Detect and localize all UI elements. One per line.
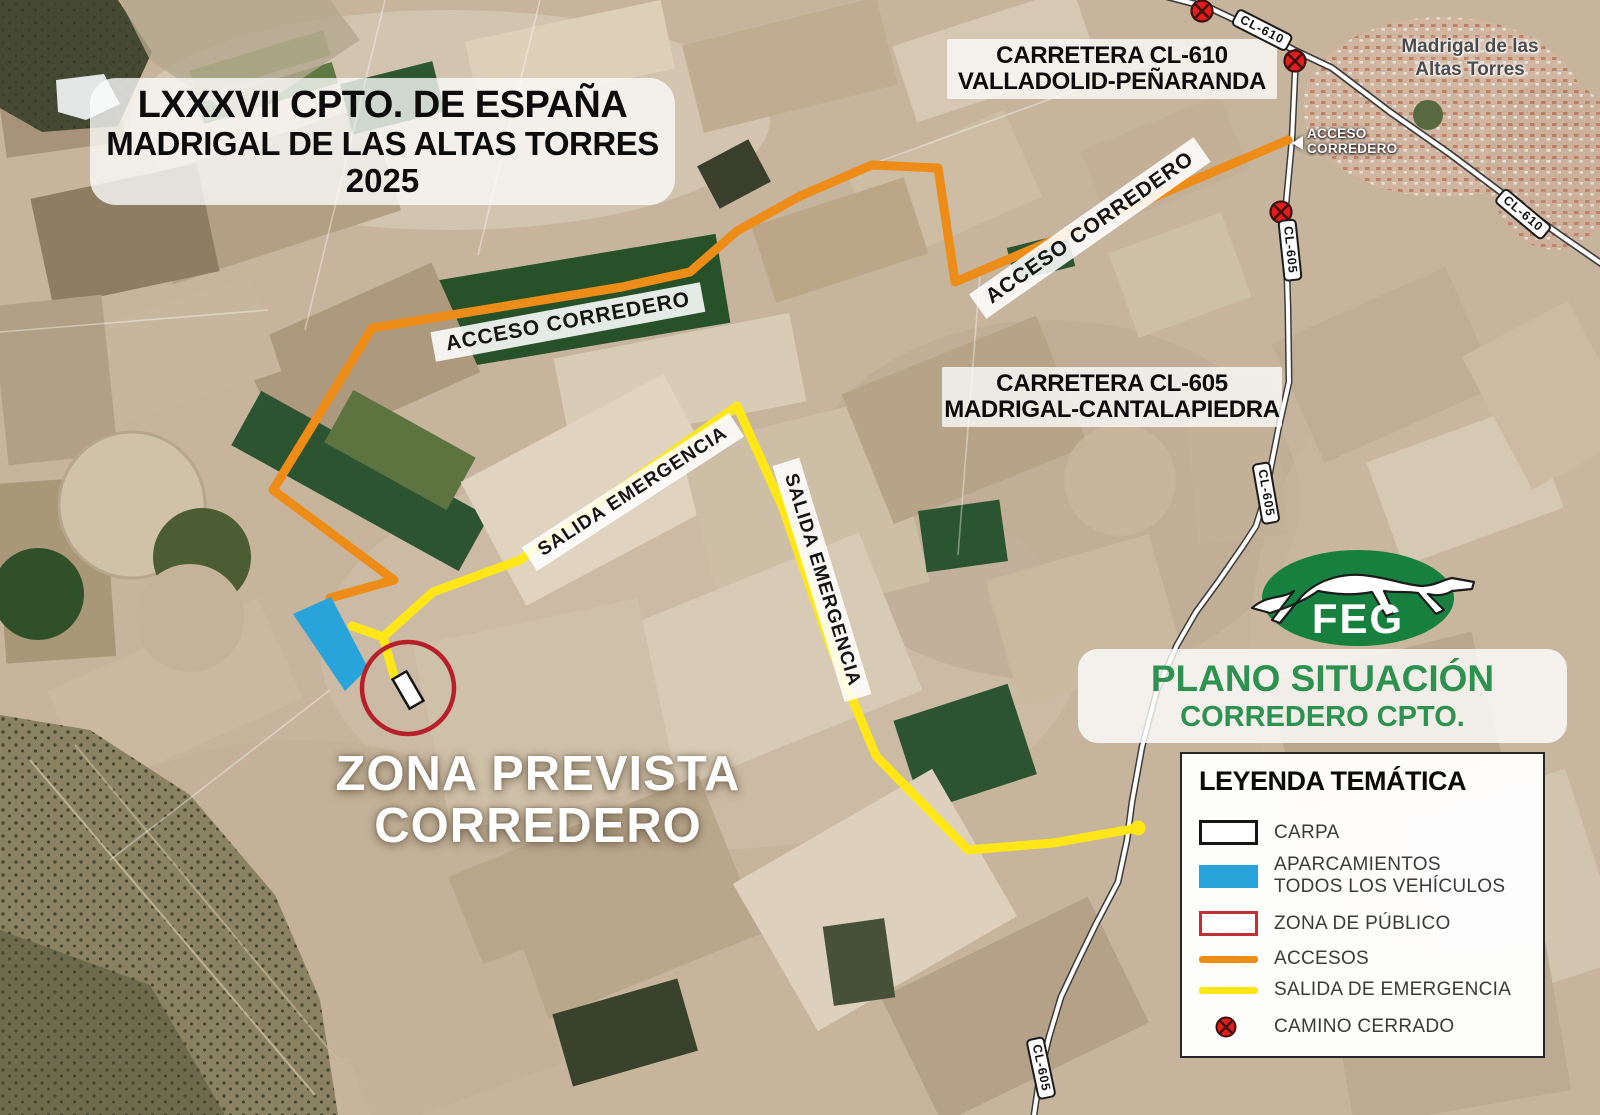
plano-situacion-line1: PLANO SITUACIÓN (1078, 658, 1567, 700)
legend-label-aparcamientos-line1: APARCAMIENTOS (1274, 854, 1505, 876)
acceso-junction-label: ACCESO CORREDERO (1307, 126, 1397, 156)
legend-swatch-carpa (1199, 820, 1258, 845)
feg-acronym: FEG (1312, 595, 1404, 642)
event-title-line1: LXXXVII CPTO. DE ESPAÑA (90, 84, 675, 126)
zona-prevista-line1: ZONA PREVISTA (335, 748, 740, 800)
carretera-cl605-line2: MADRIGAL-CANTALAPIEDRA (942, 397, 1282, 423)
legend-label-accesos: ACCESOS (1274, 947, 1369, 971)
carretera-cl610-line2: VALLADOLID-PEÑARANDA (947, 69, 1277, 95)
town-label-line2: Altas Torres (1380, 58, 1560, 81)
legend-label-aparcamientos-line2: TODOS LOS VEHÍCULOS (1274, 876, 1505, 898)
salida-route-endpoint (1131, 821, 1146, 836)
legend-label-salida: SALIDA DE EMERGENCIA (1274, 978, 1511, 1002)
event-title-box: LXXXVII CPTO. DE ESPAÑA MADRIGAL DE LAS … (90, 78, 675, 205)
carretera-cl610-label: CARRETERA CL-610 VALLADOLID-PEÑARANDA (947, 39, 1277, 99)
carretera-cl605-label: CARRETERA CL-605 MADRIGAL-CANTALAPIEDRA (942, 367, 1282, 427)
legend-swatch-accesos (1199, 956, 1258, 963)
camino-cerrado-icon (1214, 1015, 1238, 1039)
town-label-line1: Madrigal de las (1380, 35, 1560, 58)
acceso-junction-line2: CORREDERO (1307, 141, 1397, 156)
legend-label-aparcamientos: APARCAMIENTOS TODOS LOS VEHÍCULOS (1274, 854, 1505, 898)
town-label: Madrigal de las Altas Torres (1380, 35, 1560, 81)
plano-situacion-line2: CORREDERO CPTO. (1078, 700, 1567, 734)
zona-prevista-line2: CORREDERO (335, 800, 740, 852)
plano-situacion-box: PLANO SITUACIÓN CORREDERO CPTO. (1078, 649, 1567, 743)
legend-swatch-aparcamientos (1199, 865, 1258, 888)
legend-label-carpa: CARPA (1274, 821, 1340, 845)
map-canvas: FEG LXXXVII CPTO. DE ESPAÑA MADRIGAL DE … (0, 0, 1600, 1115)
acceso-arrow-icon (1292, 136, 1303, 150)
event-title-line2: MADRIGAL DE LAS ALTAS TORRES (90, 126, 675, 162)
carretera-cl610-line1: CARRETERA CL-610 (947, 43, 1277, 69)
event-title-year: 2025 (90, 162, 675, 200)
carretera-cl605-line1: CARRETERA CL-605 (942, 371, 1282, 397)
legend-label-zona-publico: ZONA DE PÚBLICO (1274, 912, 1451, 936)
acceso-junction-line1: ACCESO (1307, 126, 1397, 141)
legend-panel: LEYENDA TEMÁTICA CARPA APARCAMIENTOS TOD… (1180, 752, 1545, 1058)
legend-swatch-salida (1199, 987, 1258, 994)
legend-swatch-zona-publico (1199, 911, 1258, 936)
legend-title: LEYENDA TEMÁTICA (1199, 766, 1466, 797)
legend-label-camino: CAMINO CERRADO (1274, 1015, 1455, 1039)
zona-prevista-label: ZONA PREVISTA CORREDERO (335, 748, 740, 852)
